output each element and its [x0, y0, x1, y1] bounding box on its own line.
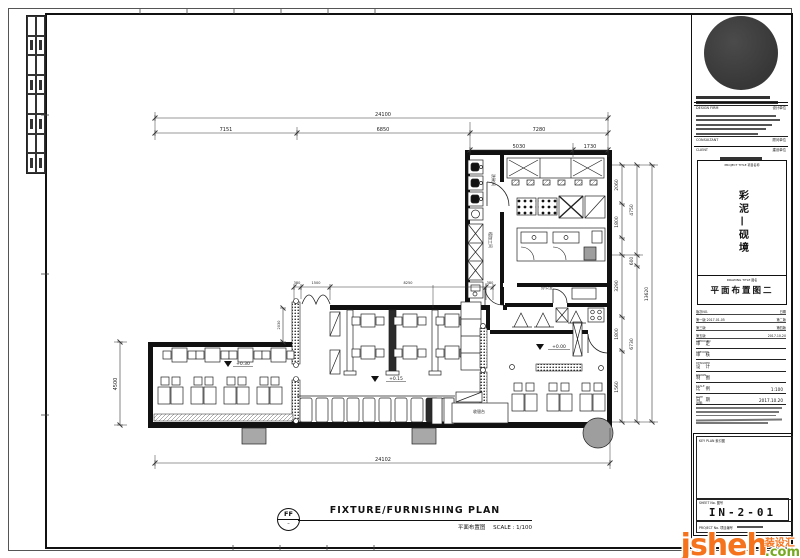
footer-subtitle: 平面布置图 SCALE : 1/100 [370, 523, 532, 531]
plan-label: 380 [487, 281, 494, 285]
design-firm-label-en: DESIGN FIRM [696, 107, 718, 110]
company-info-line [696, 128, 766, 130]
consultant-label-cn: 顾问单位 [772, 139, 786, 142]
ref-bottom: – [287, 520, 290, 528]
plan-label: 1730 [584, 144, 597, 150]
company-info-line [696, 133, 758, 135]
field-row: CHECKED审 核 [696, 349, 786, 360]
revision-table: 版次NO.日期第一版 2017.01.05第二版第三版第四版第五版2017.10… [696, 307, 786, 337]
plan-label: 粗加工间 [488, 232, 494, 248]
company-info-line [696, 115, 776, 117]
watermark-tld: .com [765, 548, 800, 558]
plan-label: 24100 [375, 112, 391, 118]
plan-label: 1560 [614, 381, 620, 393]
consultant-row: CONSULTANT 顾问单位 [696, 139, 786, 142]
fold-ticks [41, 9, 375, 550]
plan-label: 1500 [312, 281, 321, 285]
entrance-scallop [302, 295, 330, 304]
design-firm-row: DESIGN FIRM 设计单位 [696, 107, 786, 110]
revision-row: 第三版第四版 [696, 323, 786, 331]
drawing-title: 平面布置图二 [698, 284, 786, 296]
plan-label: 8250 [404, 281, 413, 285]
company-info-line [696, 119, 780, 121]
sheet-number: IN-2-01 [697, 506, 788, 519]
drawing-scale: SCALE : 1/100 [493, 525, 532, 531]
plan-label: 1800 [614, 216, 620, 228]
floor-plan: 2410071516850728050301730241024500206018… [0, 0, 800, 558]
project-box: PROJECT TITLE 项目名称 彩泥—砚境 DRAWING TITLE 图… [697, 160, 787, 305]
drawing-title-section: DRAWING TITLE 图名 平面布置图二 [698, 275, 786, 304]
company-name-line [696, 96, 770, 99]
plan-label: 5030 [513, 144, 526, 150]
drawing-title-en: FIXTURE/FURNISHING PLAN [298, 505, 532, 516]
field-row: APPROVED审 定 [696, 338, 786, 349]
consultant-label-en: CONSULTANT [696, 139, 718, 142]
keyplan-sheet-block: KEY PLAN 索引图 SHEET No. 图号 IN-2-01 PROJEC… [693, 433, 792, 536]
plan-label: 3290 [614, 280, 620, 292]
field-row: DRAWN制 图 [696, 372, 786, 383]
drawing-sheet: 2410071516850728050301730241024500206018… [0, 0, 800, 558]
project-title-label: PROJECT TITLE 项目名称 [698, 163, 786, 167]
sheetno-label: SHEET No. 图号 [699, 500, 786, 505]
watermark-logo[interactable]: jsheh 装设汇 .com [681, 534, 800, 558]
entry-piers [292, 299, 300, 424]
redaction-scribble [696, 422, 768, 424]
field-table: APPROVED审 定CHECKED审 核DESIGNED设 计DRAWN制 图… [696, 338, 786, 405]
plan-label: 洗碗间 [491, 174, 497, 186]
plan-label: 380 [294, 281, 301, 285]
keyplan-label: KEY PLAN 索引图 [699, 439, 725, 443]
sheetno-box: SHEET No. 图号 IN-2-01 [696, 498, 789, 521]
revision-row: 第一版 2017.01.05第二版 [696, 315, 786, 323]
drawing-title-label: DRAWING TITLE 图名 [698, 278, 786, 282]
plan-label: 600 [629, 257, 635, 266]
plan-label: 4500 [113, 378, 119, 391]
rule [694, 146, 788, 147]
notes-line [696, 407, 782, 409]
watermark-brand[interactable]: jsheh [681, 534, 767, 558]
plan-label: 2030 [277, 321, 281, 330]
plan-label: +0.15 [389, 376, 403, 382]
plan-label: 4750 [629, 204, 635, 216]
client-row: CLIENT 建设单位 [696, 149, 786, 152]
client-label-cn: 建设单位 [772, 149, 786, 152]
plan-label: 2060 [614, 179, 620, 191]
redaction-scribble [696, 418, 782, 420]
plan-label: +0.30 [236, 361, 250, 367]
drawing-ref-bubble: FF – [277, 508, 300, 531]
design-firm-label-cn: 设计单位 [772, 107, 786, 110]
revision-row: 版次NO.日期 [696, 307, 786, 315]
plan-label: 6730 [629, 338, 635, 350]
plan-label: 7280 [533, 127, 546, 133]
notes-line [696, 411, 779, 413]
plan-label: 24102 [375, 457, 391, 463]
plan-label: 1800 [614, 328, 620, 340]
plan-label: 办公室 [541, 284, 553, 290]
plan-label: 6850 [377, 127, 390, 133]
rule [694, 136, 788, 137]
keyplan-box: KEY PLAN 索引图 [696, 436, 793, 500]
plan-label: 收银台 [473, 408, 485, 414]
company-logo [704, 16, 778, 90]
field-row: DESIGNED设 计 [696, 360, 786, 371]
notes-block: 说明: [696, 401, 786, 426]
footer-underline [298, 520, 532, 521]
plan-label: +0.00 [552, 344, 566, 350]
client-label-en: CLIENT [696, 149, 708, 152]
company-info-line [696, 124, 772, 126]
notes-line [696, 415, 776, 417]
rule [694, 102, 788, 103]
ref-top: FF [284, 509, 293, 519]
project-name: 彩泥—砚境 [735, 190, 750, 255]
field-row: SCALE比 例1:100 [696, 383, 786, 394]
notes-label: 说明: [696, 401, 703, 405]
company-info-block [696, 112, 786, 137]
drawing-title-cn: 平面布置图 [458, 525, 486, 531]
plan-label: 7151 [220, 127, 233, 133]
plan-label: 13620 [644, 287, 650, 301]
